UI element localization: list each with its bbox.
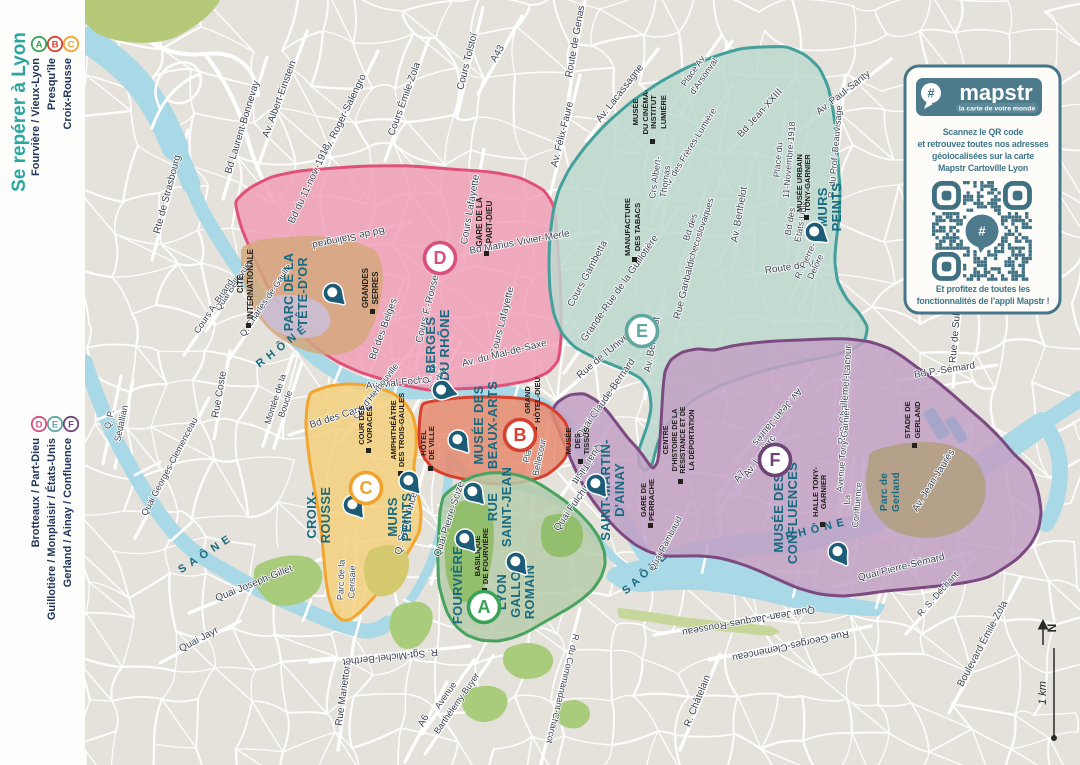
svg-text:N: N — [1045, 624, 1059, 633]
svg-text:et retrouvez toutes nos adress: et retrouvez toutes nos adresses — [918, 139, 1049, 149]
svg-text:CONFLUENCES: CONFLUENCES — [785, 462, 800, 564]
svg-text:A: A — [36, 40, 43, 51]
svg-text:Fourvière / Vieux-Lyon: Fourvière / Vieux-Lyon — [30, 58, 42, 176]
svg-text:D: D — [434, 248, 447, 268]
svg-text:FOURVIÈRE: FOURVIÈRE — [450, 546, 465, 624]
svg-text:SAINT-JEAN: SAINT-JEAN — [499, 467, 514, 547]
svg-text:GRANDES: GRANDES — [361, 267, 370, 308]
svg-text:STADE DE: STADE DE — [903, 401, 912, 438]
svg-text:Se repérer à Lyon: Se repérer à Lyon — [9, 32, 30, 192]
svg-text:RÉSISTANCE ET DE: RÉSISTANCE ET DE — [678, 406, 687, 473]
svg-text:GERLAND: GERLAND — [913, 401, 922, 439]
svg-text:B: B — [52, 40, 59, 51]
svg-text:E: E — [52, 420, 58, 431]
svg-text:GARE DE LA: GARE DE LA — [475, 197, 484, 247]
svg-text:LUMIÈRE: LUMIÈRE — [659, 95, 668, 129]
svg-text:géolocalisées sur la carte: géolocalisées sur la carte — [932, 151, 1034, 161]
svg-text:DE VILLE: DE VILLE — [427, 426, 436, 460]
svg-text:mapstr: mapstr — [959, 80, 1033, 105]
svg-text:PARC DE LA: PARC DE LA — [282, 253, 296, 331]
svg-text:MUSÉE: MUSÉE — [631, 99, 640, 126]
svg-text:SERRES: SERRES — [371, 271, 380, 305]
svg-text:Brotteaux / Part-Dieu: Brotteaux / Part-Dieu — [30, 438, 42, 547]
svg-text:HÔTEL-DIEU: HÔTEL-DIEU — [533, 377, 542, 423]
svg-text:CENTRE: CENTRE — [663, 425, 670, 454]
svg-text:DES TABACS: DES TABACS — [633, 203, 642, 251]
svg-text:TÊTE-D'OR: TÊTE-D'OR — [295, 257, 310, 327]
svg-text:D'AINAY: D'AINAY — [612, 463, 627, 517]
svg-text:VORACES: VORACES — [365, 406, 374, 443]
svg-text:E: E — [636, 321, 648, 341]
svg-text:ROUSSE: ROUSSE — [318, 487, 333, 544]
svg-text:INTERNATIONALE: INTERNATIONALE — [246, 248, 255, 319]
svg-text:F: F — [68, 420, 74, 431]
svg-text:RUE: RUE — [485, 493, 500, 521]
svg-text:DU RHÔNE: DU RHÔNE — [437, 309, 452, 381]
svg-text:La: La — [842, 494, 853, 505]
svg-text:BEAUX-ARTS: BEAUX-ARTS — [485, 381, 500, 469]
svg-text:Parc de la: Parc de la — [335, 559, 346, 600]
svg-text:fonctionnalités de l’appli Map: fonctionnalités de l’appli Mapstr ! — [917, 296, 1050, 306]
svg-text:MUSÉE: MUSÉE — [564, 428, 573, 455]
svg-text:BERGES: BERGES — [423, 317, 438, 374]
svg-text:Presqu'île: Presqu'île — [46, 58, 58, 110]
svg-text:DES: DES — [573, 433, 582, 448]
svg-text:INSTITUT: INSTITUT — [649, 95, 658, 129]
svg-text:Gerland: Gerland — [891, 472, 902, 512]
svg-text:Cerisaie: Cerisaie — [346, 565, 357, 598]
svg-text:Et profitez de toutes les: Et profitez de toutes les — [936, 284, 1031, 294]
svg-text:CITÉ: CITÉ — [236, 274, 245, 293]
svg-text:MUSÉE DES: MUSÉE DES — [471, 385, 486, 464]
svg-text:MURS: MURS — [385, 497, 400, 537]
svg-text:MURS: MURS — [815, 187, 830, 227]
svg-text:MUSÉE DES: MUSÉE DES — [771, 473, 786, 552]
svg-text:#: # — [978, 224, 986, 239]
svg-text:TONY-GARNIER: TONY-GARNIER — [803, 154, 812, 212]
svg-text:Croix-Rousse: Croix-Rousse — [62, 58, 74, 130]
svg-text:D'HISTOIRE DE LA: D'HISTOIRE DE LA — [672, 409, 679, 472]
svg-text:PERRACHE: PERRACHE — [647, 479, 656, 521]
svg-text:Mapstr Cartoville Lyon: Mapstr Cartoville Lyon — [938, 163, 1028, 173]
svg-text:DES TROIS-GAULES: DES TROIS-GAULES — [397, 393, 406, 467]
svg-text:Parc de: Parc de — [879, 473, 890, 511]
svg-text:Gerland / Ainay / Confluence: Gerland / Ainay / Confluence — [62, 438, 74, 587]
svg-text:DE FOURVIÈRE: DE FOURVIÈRE — [481, 528, 490, 584]
svg-text:1 km: 1 km — [1037, 681, 1049, 705]
svg-text:C: C — [360, 478, 373, 498]
svg-text:D: D — [36, 420, 43, 431]
svg-text:F: F — [770, 450, 781, 470]
svg-text:LA DÉPORTATION: LA DÉPORTATION — [687, 410, 696, 471]
svg-text:CROIX-: CROIX- — [304, 491, 319, 538]
svg-text:GARNIER: GARNIER — [819, 474, 828, 509]
svg-text:Scannez le QR code: Scannez le QR code — [943, 127, 1024, 137]
svg-text:PART-DIEU: PART-DIEU — [485, 201, 494, 244]
svg-text:TISSUS: TISSUS — [582, 427, 591, 454]
svg-text:PEINTS: PEINTS — [829, 183, 844, 232]
svg-text:C: C — [68, 40, 75, 51]
svg-text:Guillotière / Monplaisir / Éta: Guillotière / Monplaisir / États-Unis — [45, 438, 58, 620]
svg-text:#: # — [927, 86, 935, 101]
svg-text:PEINTS: PEINTS — [399, 493, 414, 542]
svg-text:B: B — [514, 425, 527, 445]
svg-text:la carte de votre monde: la carte de votre monde — [959, 106, 1036, 113]
svg-text:GRAND: GRAND — [523, 386, 532, 414]
svg-text:A: A — [478, 597, 491, 617]
svg-text:MANUFACTURE: MANUFACTURE — [623, 198, 632, 256]
